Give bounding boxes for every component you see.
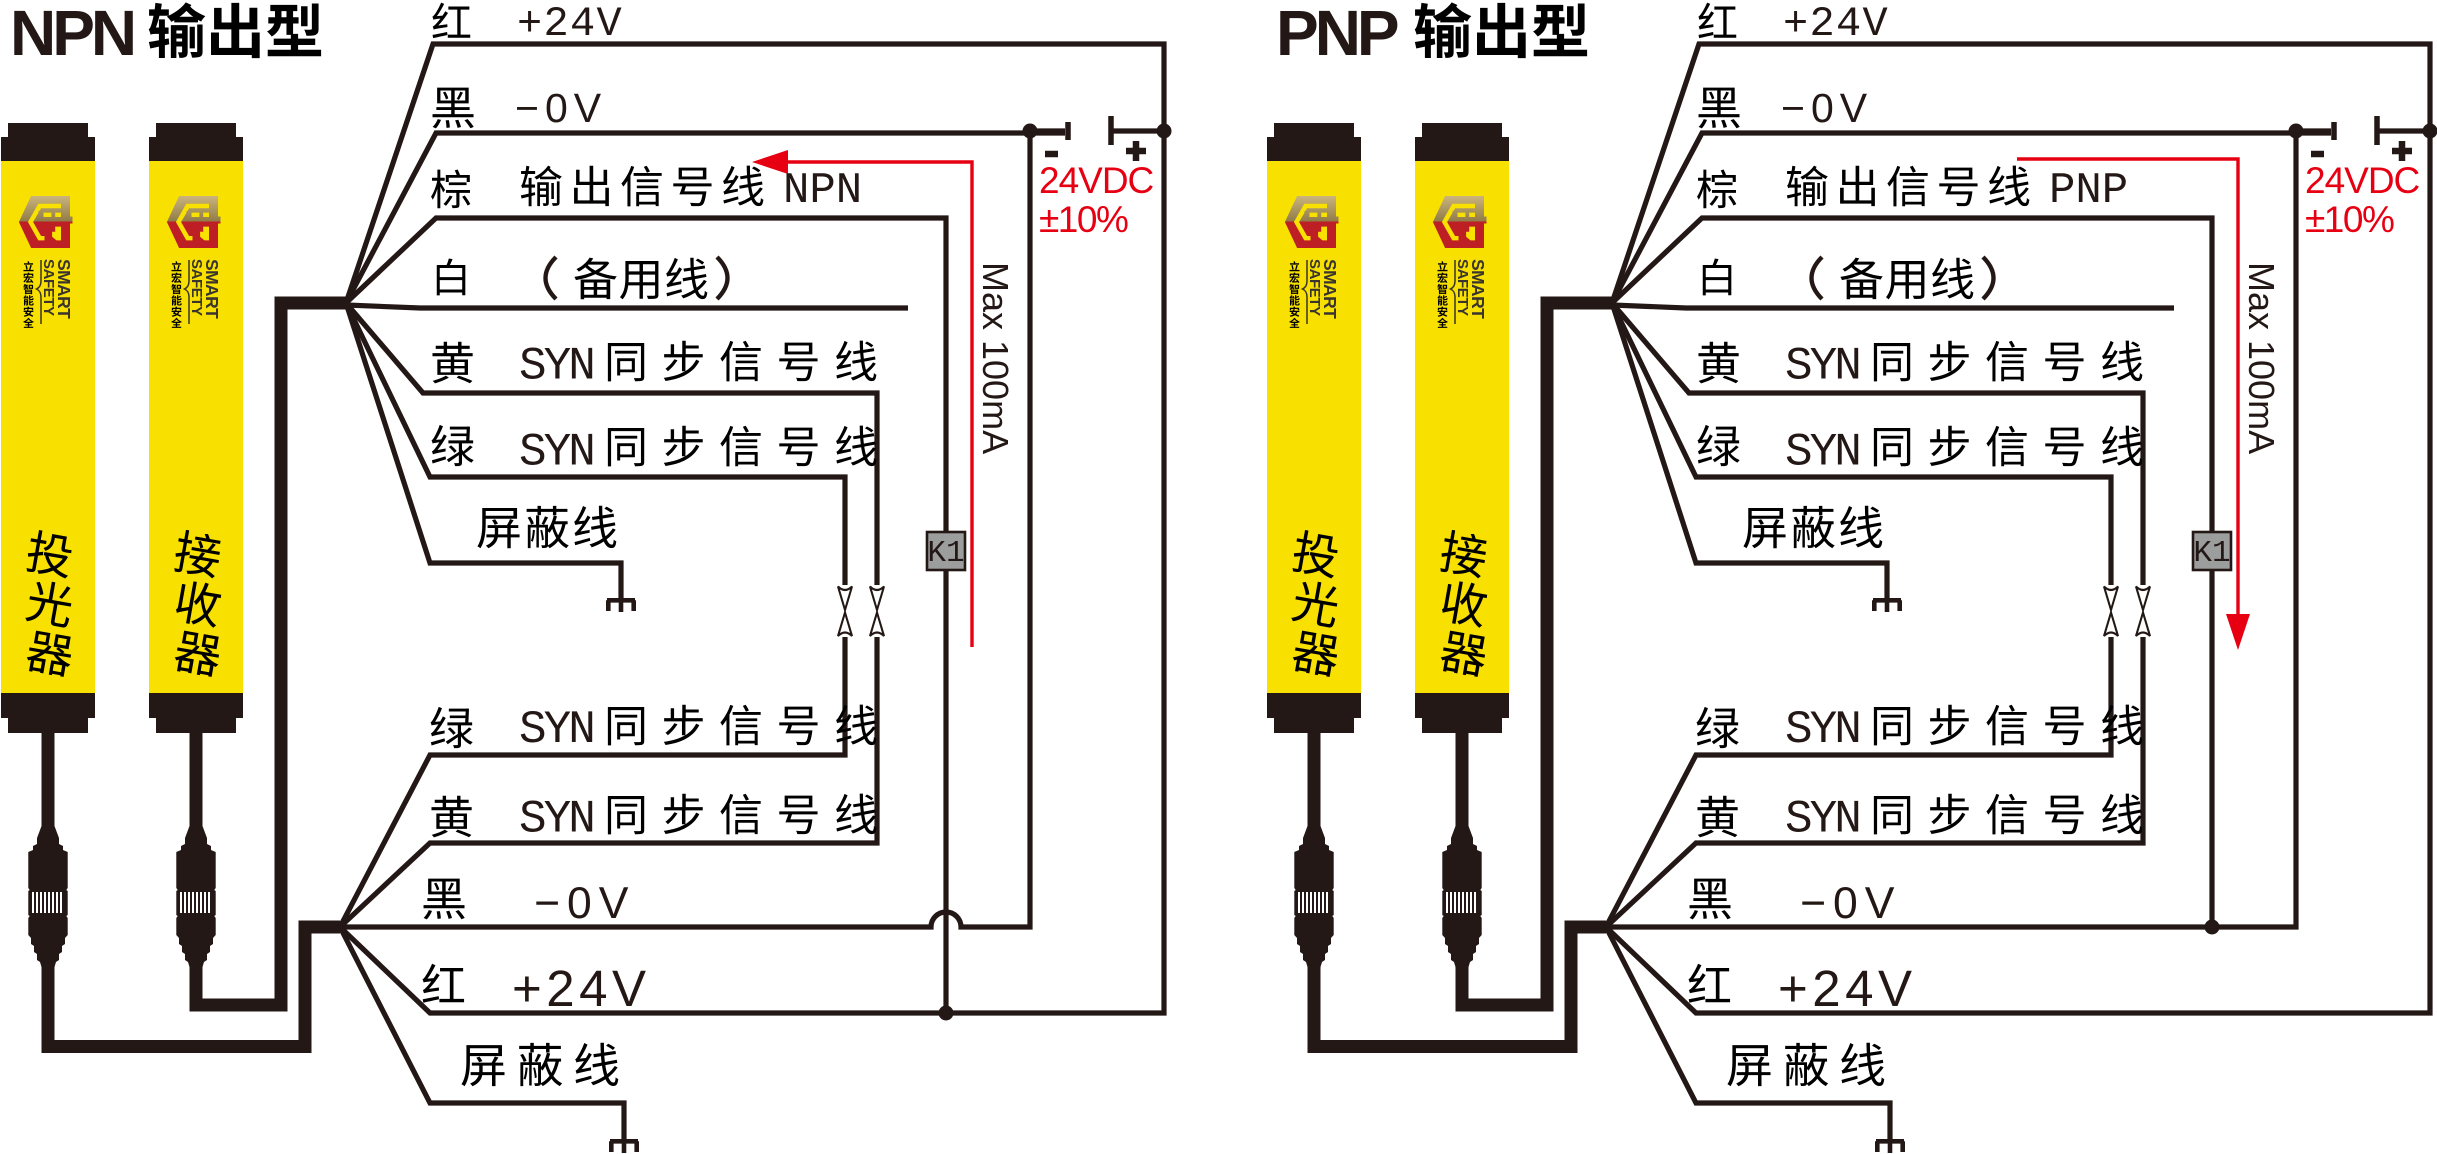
svg-text:NPN: NPN (10, 0, 133, 69)
svg-text:K1: K1 (2193, 536, 2230, 571)
svg-text:PNP: PNP (1276, 0, 1398, 69)
svg-text:Max 100mA: Max 100mA (975, 262, 1016, 454)
svg-text:±10%: ±10% (2305, 199, 2394, 240)
svg-text:SAFETY: SAFETY (1454, 259, 1471, 316)
svg-text:+24V: +24V (512, 960, 651, 1017)
svg-text:−0V: −0V (1781, 85, 1873, 131)
svg-text:+24V: +24V (1783, 0, 1889, 48)
svg-text:SAFETY: SAFETY (1306, 259, 1323, 316)
svg-text:SYN: SYN (519, 794, 593, 846)
svg-text:−0V: −0V (534, 879, 635, 928)
svg-text:NPN: NPN (783, 166, 862, 216)
svg-text:SYN: SYN (519, 704, 593, 756)
svg-text:SAFETY: SAFETY (40, 259, 57, 316)
svg-text:Max 100mA: Max 100mA (2241, 262, 2282, 454)
svg-text:K1: K1 (927, 536, 964, 571)
svg-text:SAFETY: SAFETY (188, 259, 205, 316)
svg-text:−0V: −0V (1800, 879, 1901, 928)
svg-text:±10%: ±10% (1039, 199, 1128, 240)
svg-text:24VDC: 24VDC (2305, 160, 2420, 201)
svg-text:SYN: SYN (1785, 341, 1859, 393)
svg-text:24VDC: 24VDC (1039, 160, 1154, 201)
svg-text:−0V: −0V (515, 85, 607, 131)
svg-text:+24V: +24V (1778, 960, 1917, 1017)
svg-text:SYN: SYN (1785, 427, 1859, 479)
svg-text:+24V: +24V (517, 0, 623, 48)
svg-text:SYN: SYN (1785, 794, 1859, 846)
svg-text:SYN: SYN (519, 427, 593, 479)
svg-text:SYN: SYN (519, 341, 593, 393)
svg-text:PNP: PNP (2049, 166, 2128, 216)
svg-text:SYN: SYN (1785, 704, 1859, 756)
